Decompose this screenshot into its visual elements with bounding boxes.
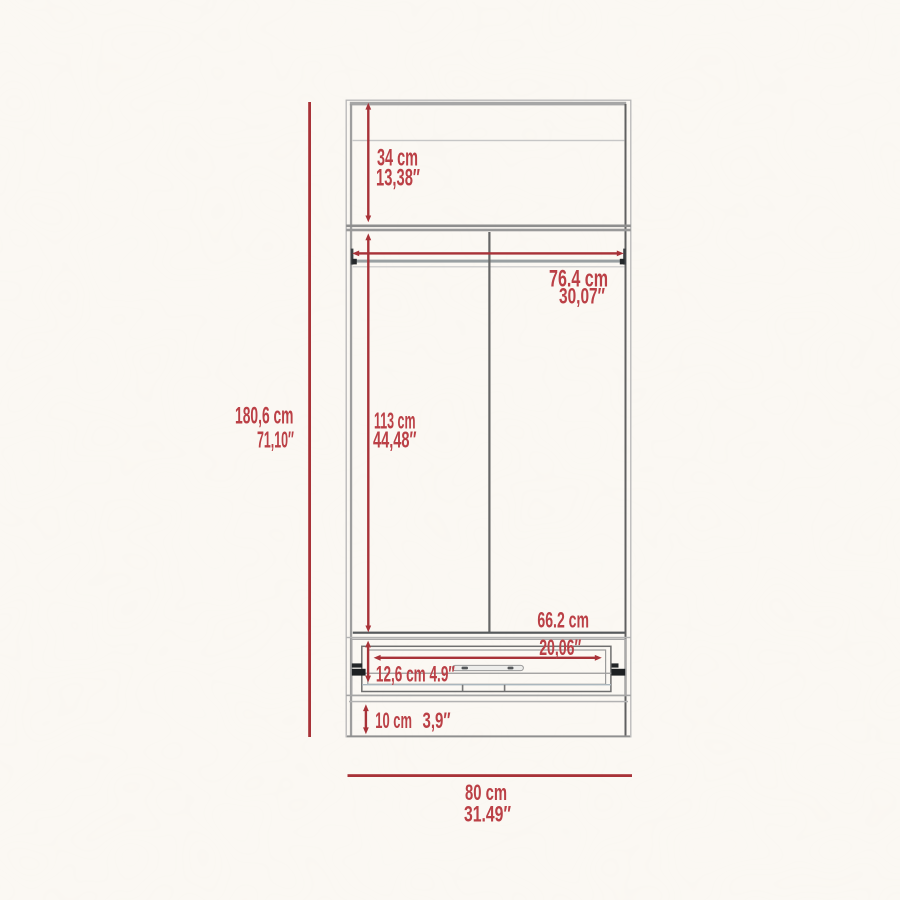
svg-text:44,48″: 44,48″ xyxy=(373,427,417,453)
svg-text:180,6 cm: 180,6 cm xyxy=(235,403,294,430)
svg-text:13,38″: 13,38″ xyxy=(376,164,420,191)
svg-text:66.2 cm: 66.2 cm xyxy=(537,608,589,633)
svg-text:10 cm: 10 cm xyxy=(375,708,412,733)
svg-text:31.49″: 31.49″ xyxy=(464,802,511,827)
svg-text:12,6 cm 4.9″: 12,6 cm 4.9″ xyxy=(376,661,455,686)
svg-text:20,06″: 20,06″ xyxy=(539,635,581,660)
svg-text:30,07″: 30,07″ xyxy=(559,284,605,309)
svg-text:71,10″: 71,10″ xyxy=(257,427,294,453)
svg-text:3,9″: 3,9″ xyxy=(423,708,451,733)
